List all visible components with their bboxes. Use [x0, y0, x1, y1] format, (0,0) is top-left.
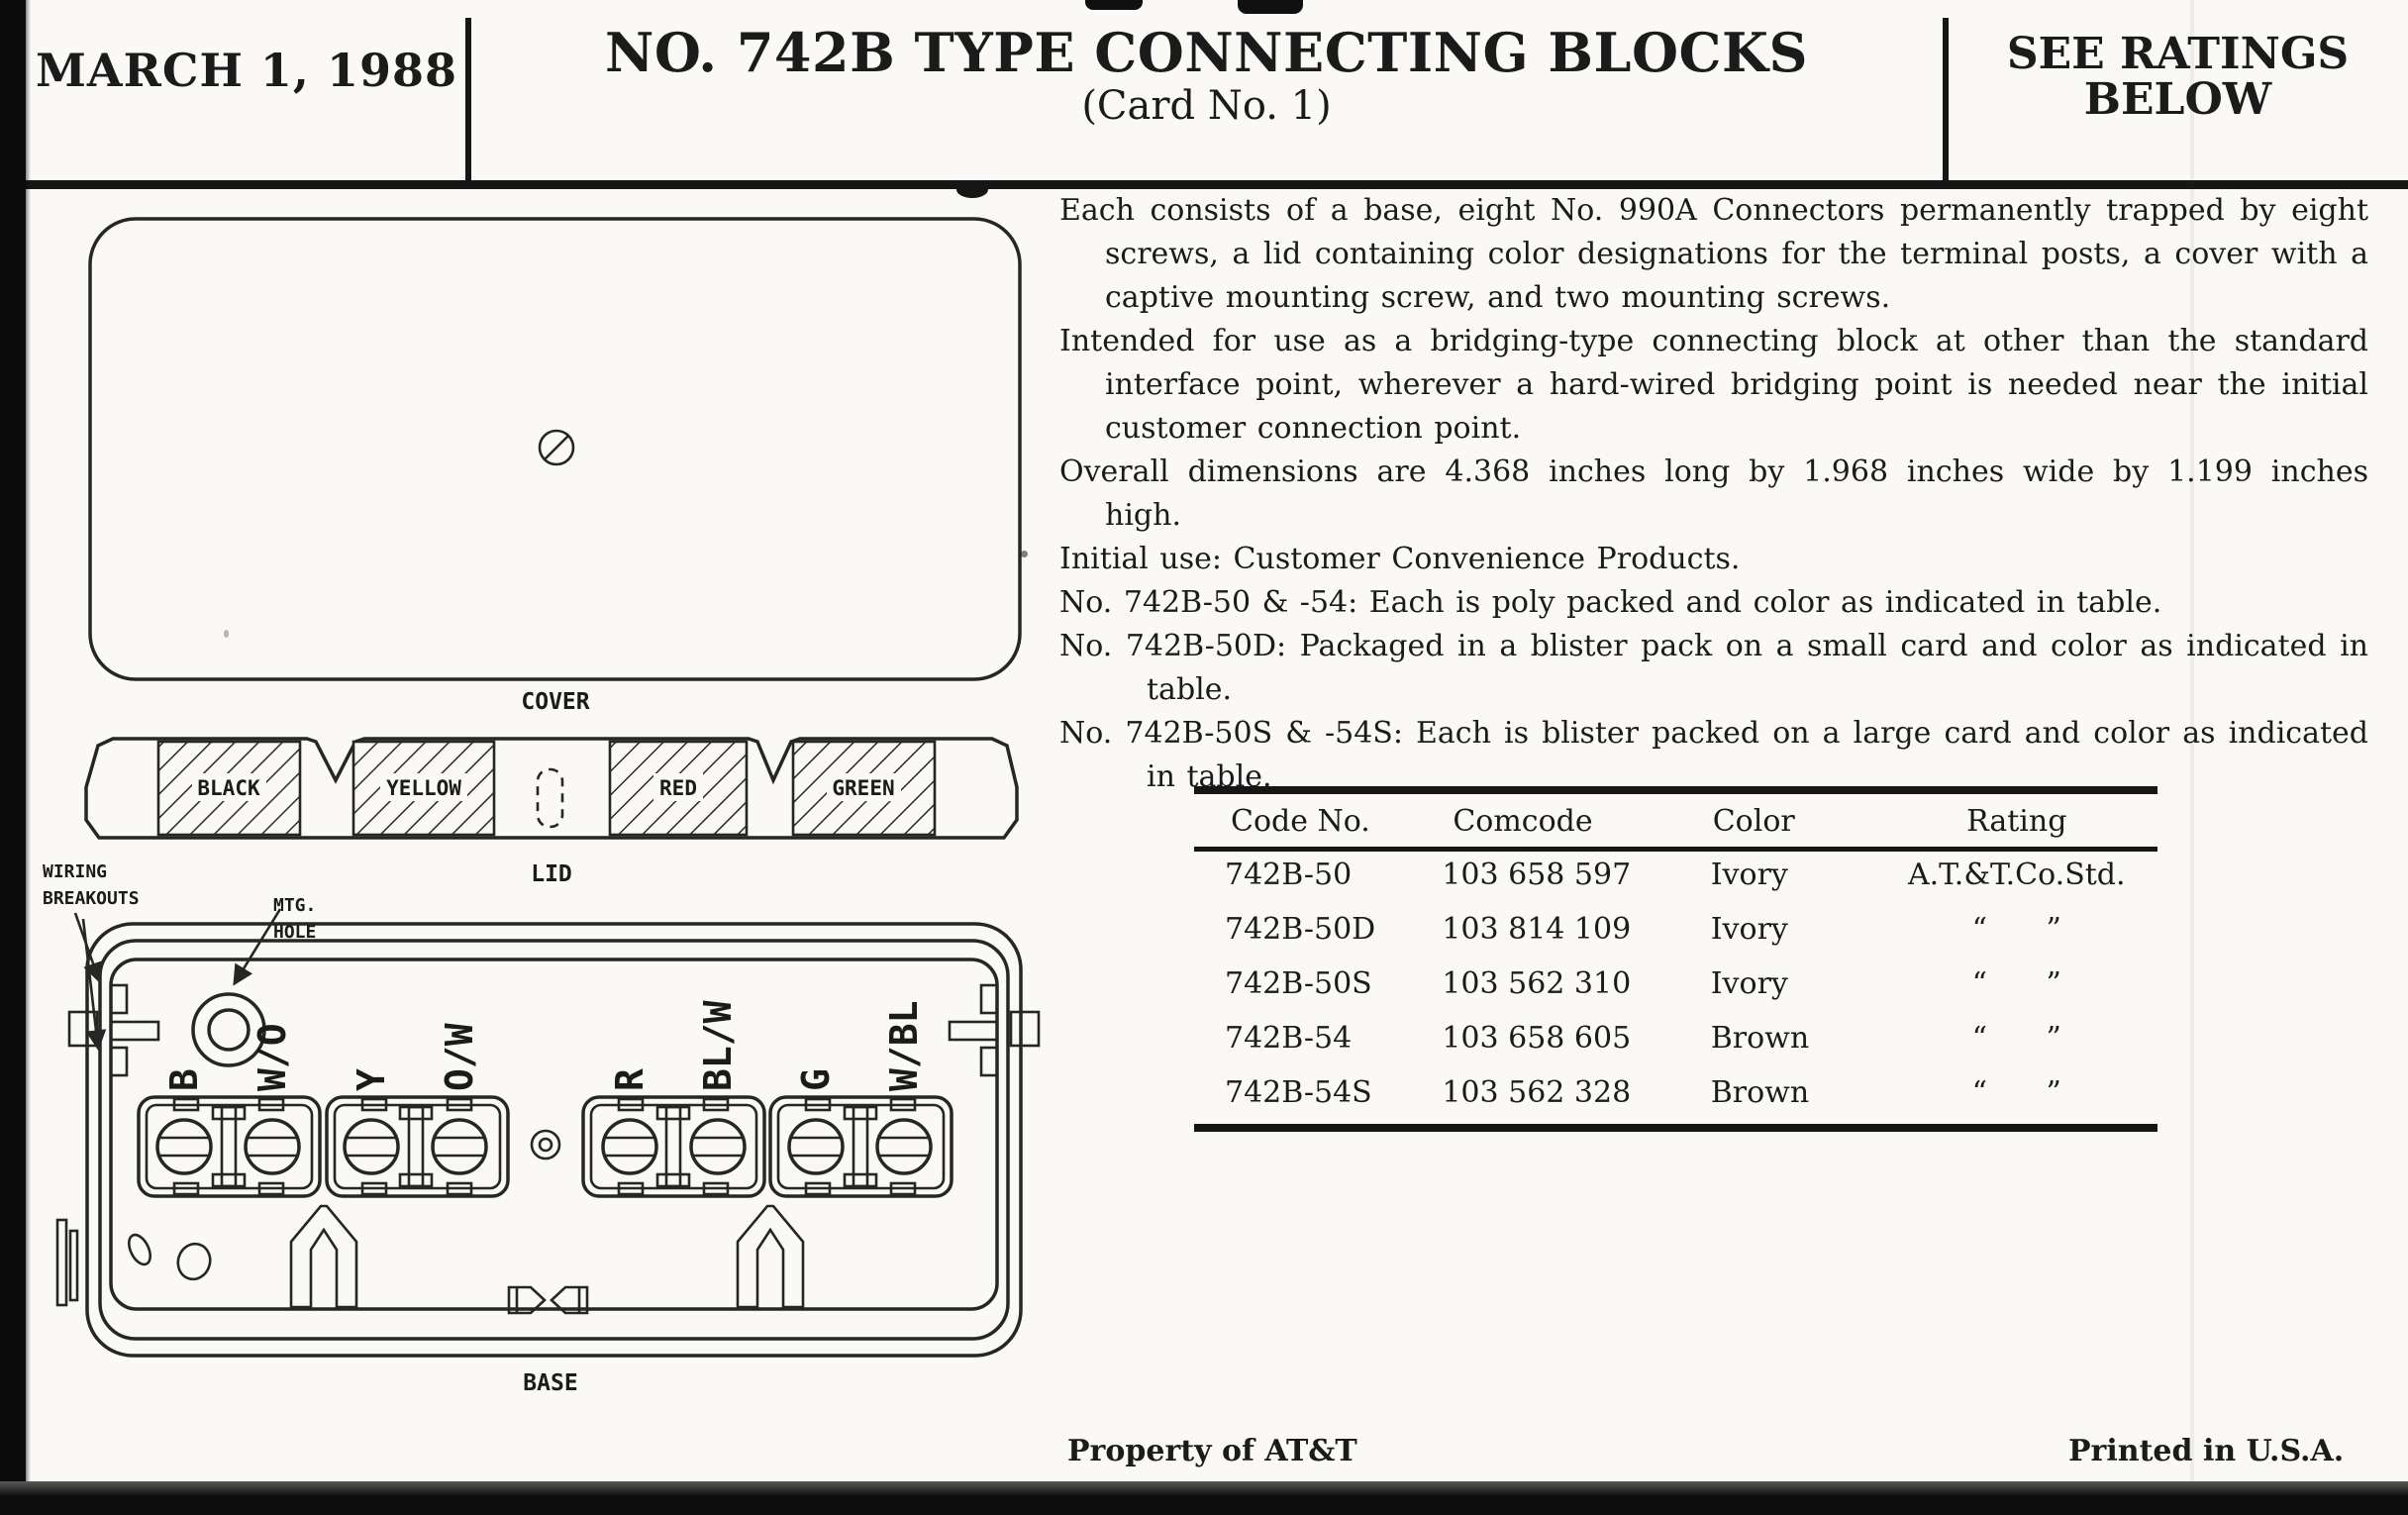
- property-notice: Property of AT&T: [1067, 1434, 1357, 1468]
- column-header-color: Color: [1697, 790, 1876, 850]
- terminal-label-g: G: [794, 1068, 838, 1091]
- mounting-hole-inner: [209, 1010, 249, 1050]
- scan-edge-bottom: [0, 1481, 2408, 1515]
- terminal-group-2: [327, 1097, 508, 1196]
- terminal-label-r: R: [608, 1068, 652, 1091]
- ratings-table: Code No. Comcode Color Rating 742B-50 10…: [1194, 786, 2157, 1132]
- column-header-rating: Rating: [1876, 790, 2157, 850]
- description-paragraph: No. 742B-50D: Packaged in a blister pack…: [1059, 625, 2368, 712]
- scan-speck: [224, 630, 229, 638]
- cell-rating: “ ”: [1876, 960, 2157, 1015]
- scan-speck: [1021, 551, 1028, 557]
- cell-comcode: 103 562 328: [1427, 1069, 1696, 1128]
- table-row: 742B-54S 103 562 328 Brown “ ”: [1194, 1069, 2157, 1128]
- base-outline-outer: [87, 924, 1021, 1356]
- lid-color-red: RED: [659, 776, 697, 800]
- cell-comcode: 103 814 109: [1427, 906, 1696, 960]
- scan-edge-left-shadow: [26, 0, 31, 1515]
- terminal-label-ow: O/W: [438, 1023, 481, 1091]
- table-row: 742B-50S 103 562 310 Ivory “ ”: [1194, 960, 2157, 1015]
- cover-view: COVER: [90, 219, 1020, 715]
- cell-rating: A.T.&T.Co.Std.: [1876, 850, 2157, 907]
- description-paragraph: Intended for use as a bridging-type conn…: [1059, 320, 2368, 451]
- cell-code: 742B-54S: [1194, 1069, 1427, 1128]
- base-left-pin: [111, 1022, 158, 1040]
- keyhole-anchor-right: [738, 1206, 803, 1307]
- scan-smudge: [1085, 0, 1143, 10]
- terminal-label-b: B: [162, 1068, 206, 1091]
- description-paragraph: Initial use: Customer Convenience Produc…: [1059, 538, 2368, 581]
- lid-view: BLACK YELLOW RED GREEN LID: [86, 739, 1017, 887]
- terminal-label-wbl: W/BL: [882, 1000, 926, 1091]
- terminal-label-wo: W/O: [251, 1023, 294, 1091]
- description-paragraph: Overall dimensions are 4.368 inches long…: [1059, 451, 2368, 538]
- cell-comcode: 103 658 605: [1427, 1015, 1696, 1069]
- terminal-housings: [139, 1097, 952, 1196]
- base-center-screw: [532, 1131, 559, 1159]
- cell-comcode: 103 658 597: [1427, 850, 1696, 907]
- cover-label: COVER: [521, 689, 589, 715]
- description-paragraph: No. 742B-50 & -54: Each is poly packed a…: [1059, 581, 2368, 625]
- terminal-group-1: [139, 1097, 320, 1196]
- mtg-hole-arrow: [235, 909, 280, 983]
- lid-center-slot: [538, 769, 562, 827]
- description-block: Each consists of a base, eight No. 990A …: [1059, 189, 2368, 799]
- cell-code: 742B-50: [1194, 850, 1427, 907]
- column-header-code: Code No.: [1194, 790, 1427, 850]
- scan-streak: [2190, 0, 2194, 1481]
- cell-rating: “ ”: [1876, 906, 2157, 960]
- cell-comcode: 103 562 310: [1427, 960, 1696, 1015]
- table-row: 742B-54 103 658 605 Brown “ ”: [1194, 1015, 2157, 1069]
- lid-color-black: BLACK: [197, 776, 260, 800]
- cell-color: Ivory: [1697, 960, 1876, 1015]
- printed-notice: Printed in U.S.A.: [2068, 1434, 2344, 1468]
- cell-code: 742B-50S: [1194, 960, 1427, 1015]
- terminal-group-4: [770, 1097, 952, 1196]
- terminal-group-3: [583, 1097, 764, 1196]
- cell-color: Brown: [1697, 1069, 1876, 1128]
- lid-color-yellow: YELLOW: [386, 776, 461, 800]
- base-view: BASE: [57, 924, 1039, 1396]
- wiring-breakouts-label: WIRING: [43, 861, 107, 882]
- cell-color: Brown: [1697, 1015, 1876, 1069]
- table-row: 742B-50D 103 814 109 Ivory “ ”: [1194, 906, 2157, 960]
- ratings-table-header-row: Code No. Comcode Color Rating: [1194, 790, 2157, 850]
- base-right-pin: [950, 1022, 997, 1040]
- cell-code: 742B-54: [1194, 1015, 1427, 1069]
- cell-code: 742B-50D: [1194, 906, 1427, 960]
- terminal-labels: B W/O Y O/W R BL/W G W/BL: [162, 1000, 926, 1091]
- table-row: 742B-50 103 658 597 Ivory A.T.&T.Co.Std.: [1194, 850, 2157, 907]
- base-label: BASE: [523, 1370, 577, 1396]
- cell-color: Ivory: [1697, 906, 1876, 960]
- captive-screw-icon: [540, 431, 573, 464]
- terminal-label-blw: BL/W: [696, 1000, 740, 1091]
- terminal-label-y: Y: [350, 1068, 393, 1091]
- base-right-tab: [1011, 1012, 1039, 1046]
- keyhole-anchor-left: [291, 1206, 356, 1307]
- svg-text:BREAKOUTS: BREAKOUTS: [43, 888, 140, 909]
- lid-label: LID: [531, 861, 572, 887]
- cell-rating: “ ”: [1876, 1015, 2157, 1069]
- mtg-hole-label: MTG.: [273, 895, 316, 916]
- scan-smudge: [1238, 0, 1303, 14]
- cell-color: Ivory: [1697, 850, 1876, 907]
- datasheet-page: MARCH 1, 1988 NO. 742B TYPE CONNECTING B…: [0, 0, 2408, 1515]
- description-paragraph: Each consists of a base, eight No. 990A …: [1059, 189, 2368, 320]
- lid-color-green: GREEN: [832, 776, 894, 800]
- column-header-comcode: Comcode: [1427, 790, 1696, 850]
- cell-rating: “ ”: [1876, 1069, 2157, 1128]
- base-left-tab: [69, 1012, 97, 1046]
- scan-edge-left: [0, 0, 26, 1515]
